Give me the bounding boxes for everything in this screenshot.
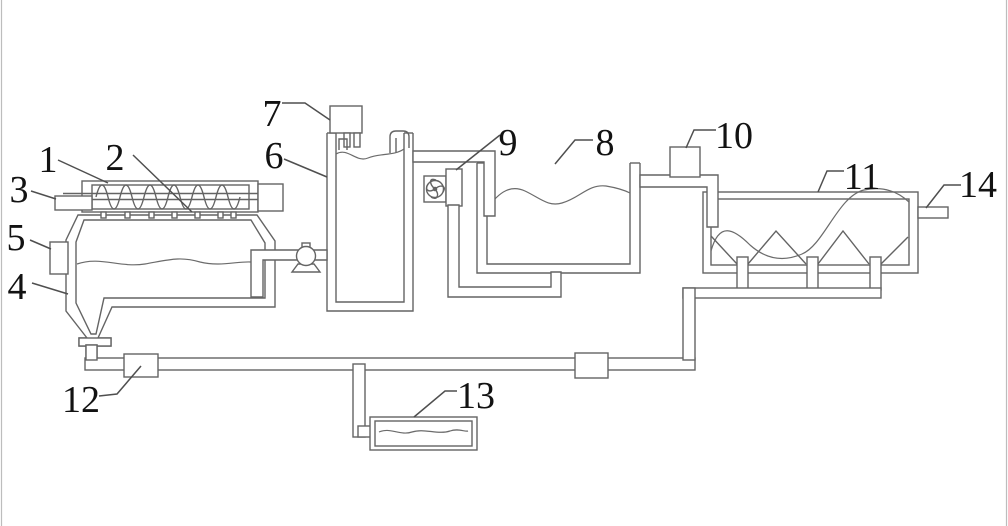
bottom-outlet-stub: [737, 257, 748, 290]
side-box-5: [50, 242, 68, 274]
ref-numeral-12: 12: [62, 379, 100, 421]
feed-tank: [50, 215, 275, 361]
outlet-stub-14: [918, 207, 948, 218]
screw-conveyor: [55, 181, 283, 218]
inlet-chute-3: [55, 196, 92, 210]
pipe-box-10: [670, 147, 700, 177]
bottom-outlet-stub: [870, 257, 881, 290]
vent-j-hook: [390, 131, 409, 153]
top-box-7: [330, 106, 362, 133]
fan-return-pipe: [448, 205, 561, 297]
settling-tank: [703, 189, 918, 290]
fan-unit: [424, 169, 462, 206]
ref-numeral-5: 5: [7, 217, 26, 259]
bottom-outlet-stub: [807, 257, 818, 290]
inline-box-12: [124, 354, 158, 377]
liquid-wave-tank8: [487, 186, 630, 209]
ref-numeral-13: 13: [457, 375, 495, 417]
top-box-stub: [354, 133, 360, 147]
screw-motor-box: [258, 184, 283, 211]
inline-box-right: [575, 353, 608, 378]
ref-numeral-1: 1: [39, 139, 58, 181]
ref-numeral-4: 4: [8, 266, 27, 308]
liquid-wave-column: [336, 149, 404, 159]
ref-numeral-6: 6: [265, 135, 284, 177]
ref-numeral-9: 9: [499, 122, 518, 164]
scrubber-column: [327, 106, 413, 311]
ref-numeral-8: 8: [596, 122, 615, 164]
patent-diagram-page: 1 2 3 4 5 6 7 8 9 10 11 12 13 14: [0, 0, 1008, 526]
ref-numeral-14: 14: [959, 164, 997, 206]
transfer-pipe-8-11: [640, 175, 718, 227]
fan-duct: [446, 169, 462, 206]
pump-icon: [292, 243, 320, 272]
process-flow-diagram: 1 2 3 4 5 6 7 8 9 10 11 12 13 14: [0, 0, 1008, 526]
ref-numeral-3: 3: [10, 169, 29, 211]
drip-tray: [370, 417, 477, 450]
sludge-header-pipe: [683, 288, 881, 298]
header-drop-pipe: [683, 288, 695, 360]
ref-numeral-7: 7: [263, 93, 282, 135]
funnel-drop-pipe: [86, 345, 97, 360]
absorber-tank: [477, 163, 640, 273]
ref-numeral-10: 10: [715, 115, 753, 157]
pump-body: [297, 247, 316, 266]
ref-numeral-11: 11: [844, 156, 881, 198]
ref-numeral-2: 2: [106, 137, 125, 179]
